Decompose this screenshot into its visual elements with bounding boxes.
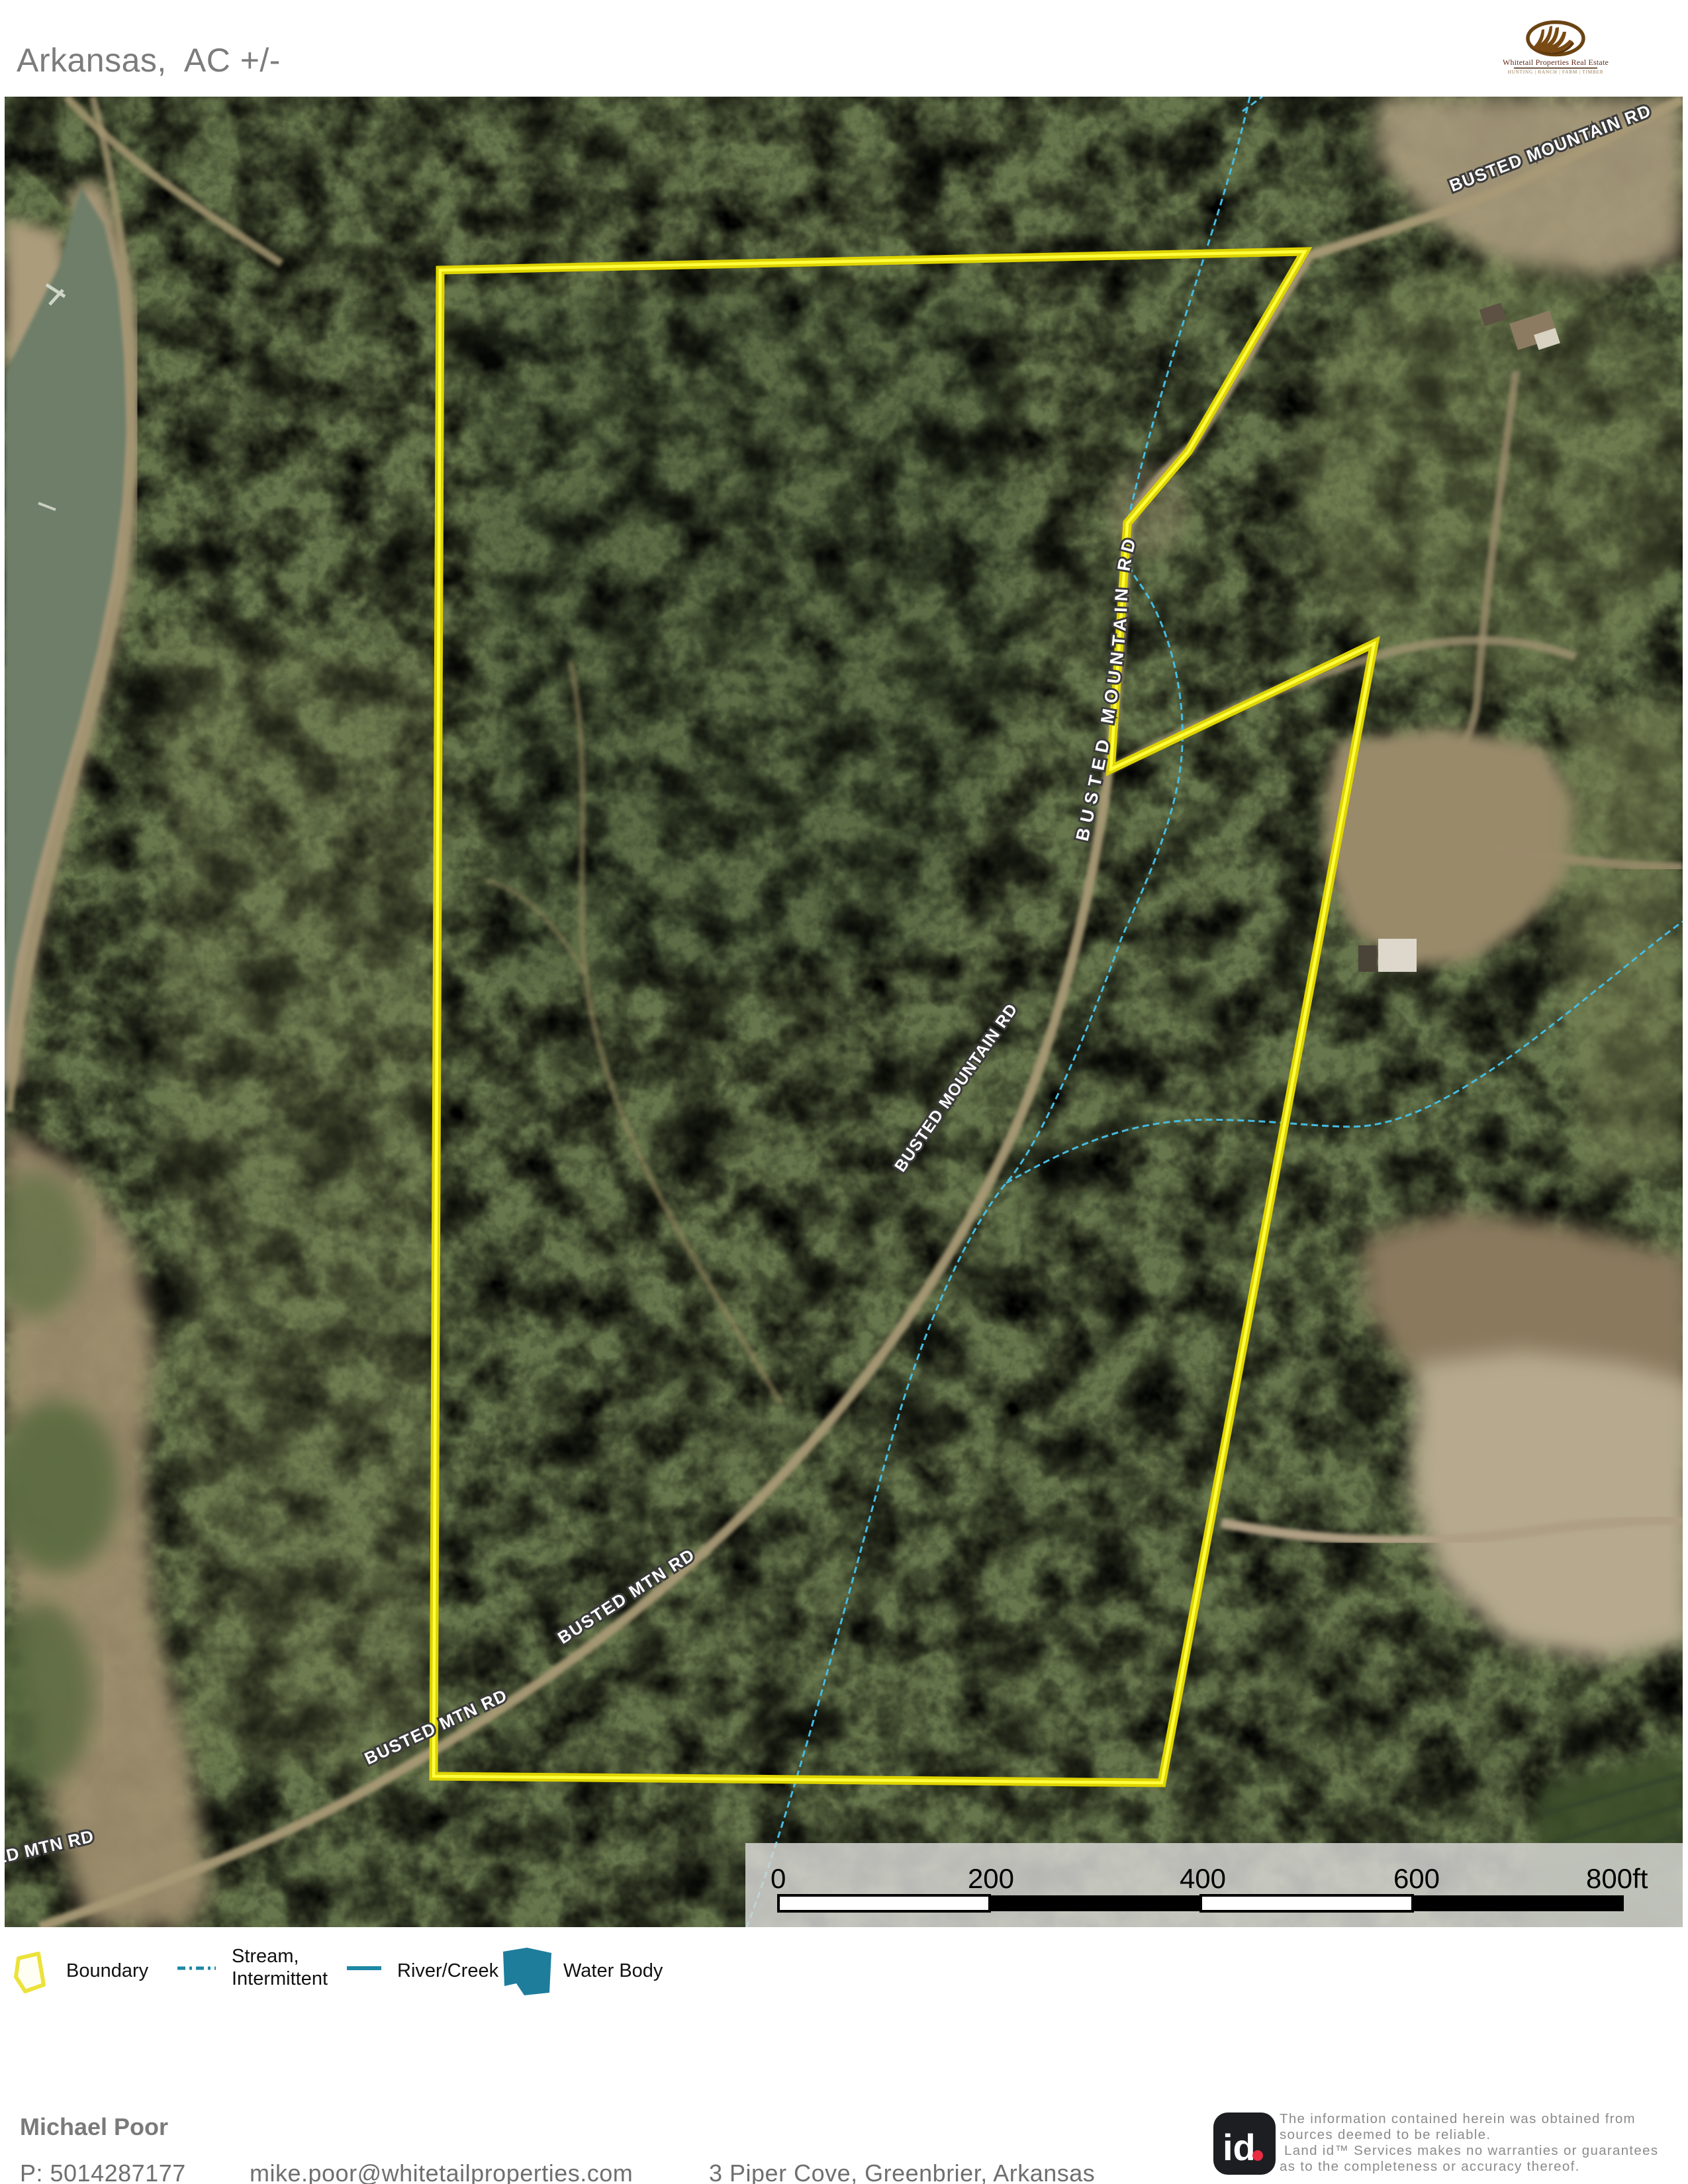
- svg-text:0: 0: [771, 1863, 786, 1894]
- svg-text:200: 200: [968, 1863, 1014, 1894]
- svg-text:Intermittent: Intermittent: [232, 1968, 328, 1989]
- svg-text:Stream,: Stream,: [232, 1946, 299, 1967]
- svg-text:River/Creek: River/Creek: [397, 1960, 499, 1981]
- svg-text:600: 600: [1393, 1863, 1440, 1894]
- svg-text:Boundary: Boundary: [66, 1960, 149, 1981]
- svg-text:Whitetail Properties Real Esta: Whitetail Properties Real Estate: [1503, 58, 1609, 67]
- svg-text:id: id: [1223, 2126, 1256, 2168]
- svg-text:800ft: 800ft: [1586, 1863, 1648, 1894]
- svg-text:400: 400: [1180, 1863, 1226, 1894]
- svg-text:HUNTING | RANCH | FARM | TIMBE: HUNTING | RANCH | FARM | TIMBER: [1508, 70, 1604, 75]
- svg-text:Water Body: Water Body: [563, 1960, 663, 1981]
